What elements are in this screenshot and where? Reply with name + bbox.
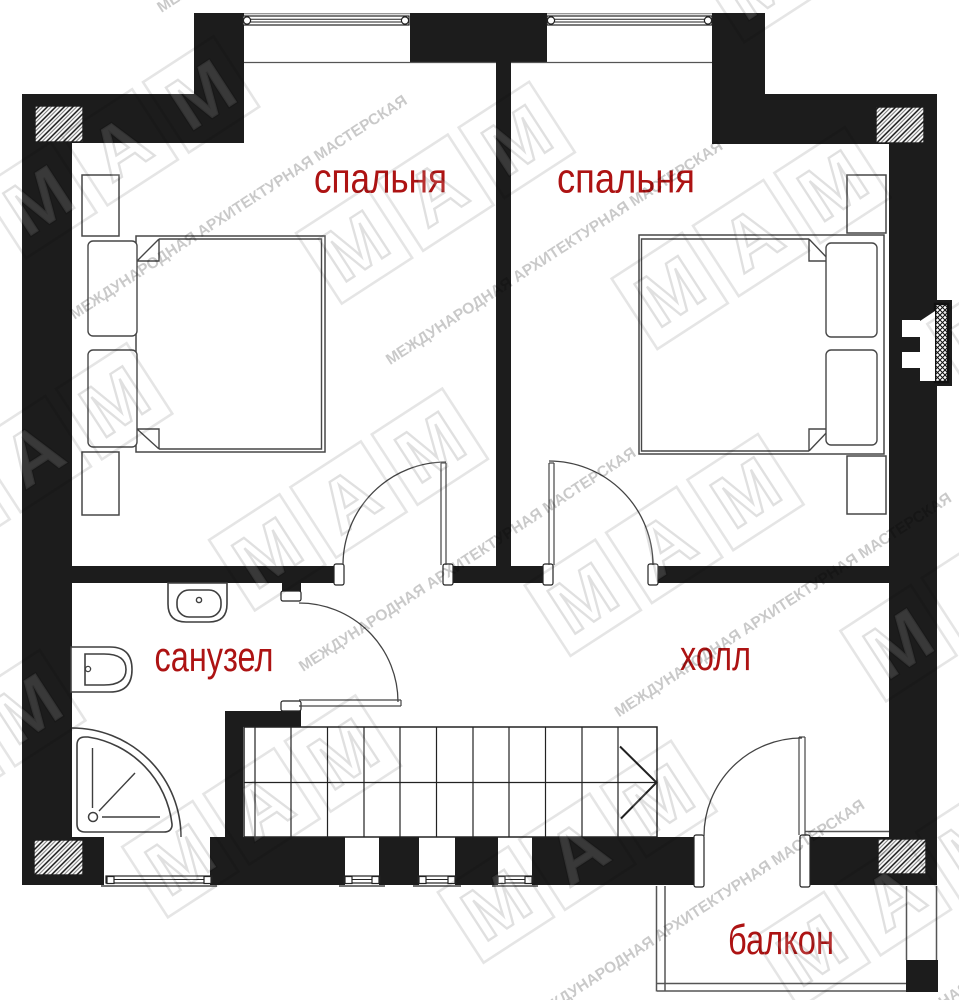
- svg-text:санузел: санузел: [155, 633, 274, 680]
